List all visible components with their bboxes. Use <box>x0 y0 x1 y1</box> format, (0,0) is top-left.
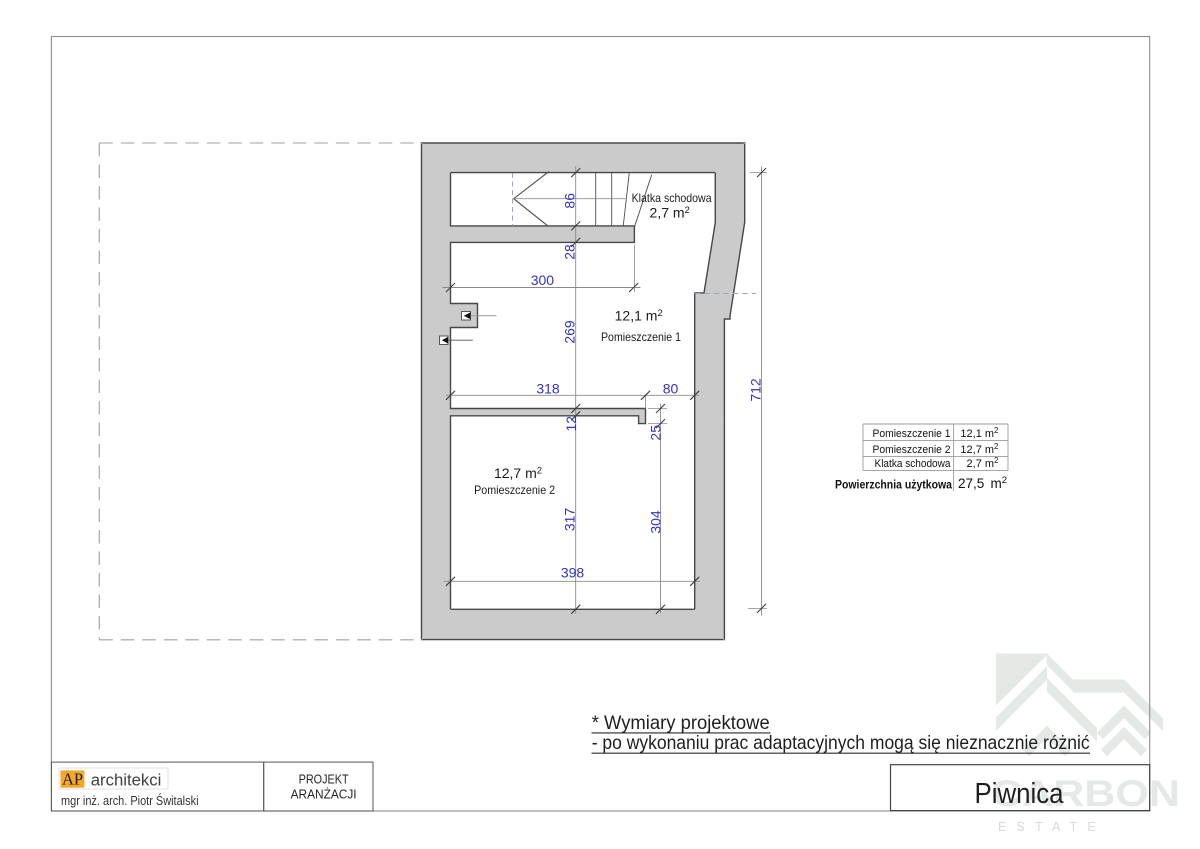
svg-text:712: 712 <box>748 378 764 402</box>
svg-text:318: 318 <box>536 380 560 396</box>
svg-text:Pomieszczenie 1: Pomieszczenie 1 <box>873 428 951 440</box>
svg-text:398: 398 <box>561 565 585 581</box>
svg-text:ARANŻACJI: ARANŻACJI <box>291 788 357 802</box>
svg-text:Klatka schodowa: Klatka schodowa <box>875 458 952 470</box>
svg-text:12: 12 <box>563 416 579 432</box>
svg-text:Piwnica: Piwnica <box>975 778 1065 810</box>
svg-text:27,5: 27,5 <box>958 476 984 491</box>
svg-text:* Wymiary projektowe: * Wymiary projektowe <box>592 712 770 734</box>
svg-text:Powierzchnia użytkowa: Powierzchnia użytkowa <box>835 478 952 492</box>
svg-text:Klatka schodowa: Klatka schodowa <box>632 191 712 205</box>
svg-text:12,1 m2: 12,1 m2 <box>615 308 663 324</box>
svg-text:304: 304 <box>648 510 664 534</box>
svg-text:architekci: architekci <box>91 770 162 789</box>
svg-text:80: 80 <box>663 380 679 396</box>
svg-text:mgr inż. arch. Piotr Świtalski: mgr inż. arch. Piotr Świtalski <box>61 793 199 808</box>
svg-text:86: 86 <box>562 193 578 209</box>
svg-text:25: 25 <box>648 425 664 441</box>
svg-text:12,1 m2: 12,1 m2 <box>960 426 999 440</box>
svg-text:2,7 m2: 2,7 m2 <box>650 204 690 220</box>
svg-text:12,7 m2: 12,7 m2 <box>960 442 999 456</box>
svg-text:Pomieszczenie 2: Pomieszczenie 2 <box>474 483 555 497</box>
svg-text:317: 317 <box>562 508 578 532</box>
svg-text:28: 28 <box>562 244 578 260</box>
svg-text:PROJEKT: PROJEKT <box>299 773 349 787</box>
svg-text:AP: AP <box>62 770 83 789</box>
svg-text:300: 300 <box>531 272 555 288</box>
svg-text:- po wykonaniu prac adaptacyjn: - po wykonaniu prac adaptacyjnych mogą s… <box>592 732 1090 754</box>
svg-text:Pomieszczenie 2: Pomieszczenie 2 <box>873 444 951 456</box>
svg-text:Pomieszczenie 1: Pomieszczenie 1 <box>601 330 681 344</box>
svg-text:12,7 m2: 12,7 m2 <box>494 465 542 481</box>
svg-text:269: 269 <box>562 320 578 344</box>
svg-text:ESTATE: ESTATE <box>998 820 1106 834</box>
